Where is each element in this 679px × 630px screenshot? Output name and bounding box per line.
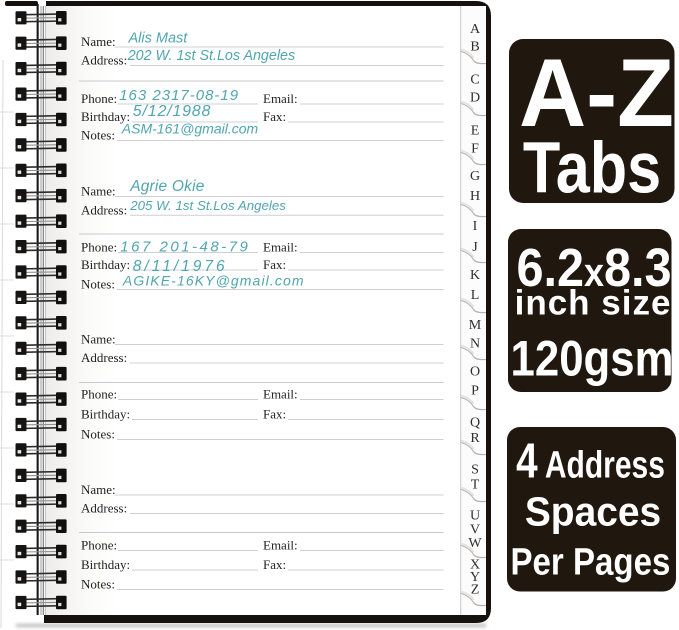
- svg-text:205 W. 1st St.Los Angeles: 205 W. 1st St.Los Angeles: [129, 198, 286, 213]
- svg-text:L: L: [471, 288, 480, 303]
- svg-text:Address:: Address:: [81, 53, 127, 68]
- svg-text:inch size: inch size: [515, 284, 672, 323]
- svg-text:R: R: [470, 431, 480, 446]
- svg-text:ASM-161@gmail.com: ASM-161@gmail.com: [121, 121, 259, 137]
- svg-text:Birthday:: Birthday:: [81, 257, 130, 272]
- svg-text:Notes:: Notes:: [81, 128, 115, 143]
- svg-text:B: B: [470, 40, 479, 55]
- svg-text:Z: Z: [471, 583, 480, 598]
- svg-text:Email:: Email:: [263, 91, 298, 106]
- svg-text:Fax:: Fax:: [263, 109, 286, 124]
- svg-text:Per Pages: Per Pages: [510, 541, 670, 584]
- svg-text:A: A: [470, 22, 481, 37]
- svg-text:5/12/1988: 5/12/1988: [133, 103, 211, 120]
- svg-text:Spaces: Spaces: [525, 490, 661, 535]
- svg-text:Address:: Address:: [81, 202, 127, 217]
- svg-text:Email:: Email:: [263, 538, 298, 553]
- svg-text:I: I: [473, 219, 478, 234]
- svg-text:AGIKE-16KY@gmail.com: AGIKE-16KY@gmail.com: [122, 273, 305, 289]
- svg-text:120gsm: 120gsm: [511, 330, 674, 386]
- svg-text:Fax:: Fax:: [263, 407, 286, 422]
- svg-text:G: G: [470, 169, 480, 184]
- svg-text:Birthday:: Birthday:: [81, 407, 130, 422]
- svg-text:Phone:: Phone:: [81, 538, 117, 553]
- svg-text:163 2317-08-19: 163 2317-08-19: [119, 87, 239, 104]
- svg-text:D: D: [470, 91, 480, 106]
- svg-text:Phone:: Phone:: [81, 387, 117, 402]
- svg-text:Address:: Address:: [81, 501, 127, 516]
- svg-text:Fax:: Fax:: [263, 557, 286, 572]
- svg-text:Name:: Name:: [81, 184, 116, 199]
- svg-text:Name:: Name:: [81, 34, 116, 49]
- svg-text:H: H: [470, 189, 480, 204]
- svg-text:Tabs: Tabs: [523, 129, 661, 209]
- svg-text:K: K: [470, 268, 480, 283]
- svg-text:Address:: Address:: [81, 350, 127, 365]
- svg-text:Email:: Email:: [263, 240, 298, 255]
- svg-text:Notes:: Notes:: [81, 427, 115, 442]
- svg-text:Notes:: Notes:: [81, 277, 115, 292]
- svg-text:Q: Q: [470, 416, 480, 431]
- svg-text:E: E: [471, 124, 480, 139]
- svg-text:T: T: [471, 478, 480, 493]
- svg-text:J: J: [472, 240, 478, 255]
- svg-text:Name:: Name:: [81, 482, 116, 497]
- svg-text:C: C: [470, 73, 479, 88]
- svg-text:167 201-48-79: 167 201-48-79: [120, 239, 250, 256]
- svg-text:S: S: [471, 463, 479, 478]
- svg-text:Birthday:: Birthday:: [81, 557, 130, 572]
- svg-text:W: W: [468, 536, 482, 551]
- svg-text:Email:: Email:: [263, 387, 298, 402]
- svg-text:U: U: [470, 509, 480, 524]
- svg-text:Phone:: Phone:: [81, 91, 117, 106]
- svg-text:202 W. 1st St.Los Angeles: 202 W. 1st St.Los Angeles: [127, 48, 295, 64]
- svg-text:F: F: [471, 142, 479, 157]
- svg-text:P: P: [471, 384, 479, 399]
- svg-text:O: O: [470, 365, 480, 380]
- svg-text:Notes:: Notes:: [81, 577, 115, 592]
- svg-text:Agrie Okie: Agrie Okie: [129, 178, 205, 195]
- svg-text:N: N: [470, 337, 480, 352]
- svg-text:Fax:: Fax:: [263, 257, 286, 272]
- svg-text:Phone:: Phone:: [81, 240, 117, 255]
- svg-text:Alis Mast: Alis Mast: [128, 31, 189, 47]
- svg-text:M: M: [469, 318, 482, 333]
- svg-text:Name:: Name:: [81, 332, 116, 347]
